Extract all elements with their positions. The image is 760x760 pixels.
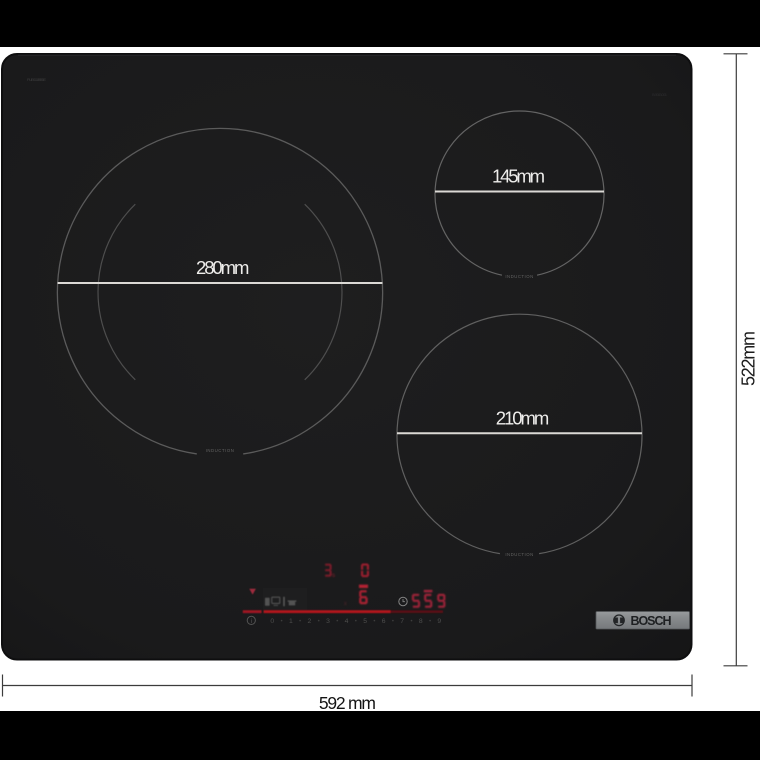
svg-text:9: 9	[437, 618, 441, 625]
svg-text:INDUCTION: INDUCTION	[505, 552, 533, 557]
svg-text:145mm: 145mm	[492, 166, 545, 187]
svg-text:INDUCTION: INDUCTION	[206, 448, 235, 453]
svg-text:BOSCH: BOSCH	[631, 614, 672, 628]
svg-text:6: 6	[382, 618, 386, 625]
svg-text:7: 7	[400, 618, 404, 625]
svg-text:2: 2	[308, 618, 312, 625]
svg-text:280mm: 280mm	[196, 257, 250, 278]
svg-text:i: i	[251, 618, 252, 625]
svg-text:8: 8	[419, 618, 423, 625]
svg-text:☓: ☓	[344, 601, 348, 608]
svg-text:INDUCTION: INDUCTION	[505, 274, 533, 279]
svg-text:5: 5	[363, 618, 367, 625]
svg-text:592 mm: 592 mm	[319, 693, 376, 713]
svg-text:4: 4	[345, 618, 349, 625]
svg-text:0: 0	[270, 618, 274, 625]
svg-text:210mm: 210mm	[496, 408, 550, 429]
svg-text:522mm: 522mm	[739, 331, 759, 386]
svg-text:1: 1	[289, 618, 293, 625]
svg-text:3: 3	[326, 618, 330, 625]
svg-text:PUE611BB5E: PUE611BB5E	[27, 77, 46, 82]
svg-text:B.9083.001: B.9083.001	[652, 92, 668, 97]
